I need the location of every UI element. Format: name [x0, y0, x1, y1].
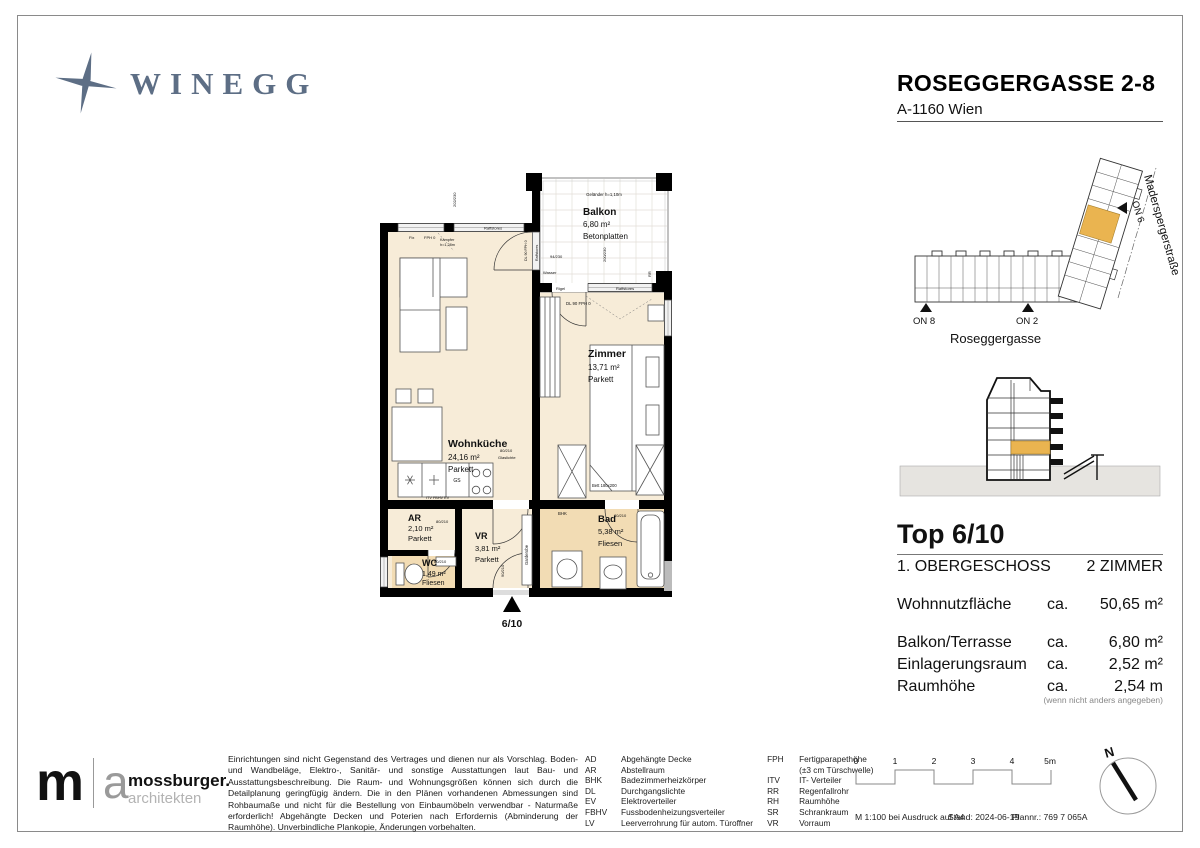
- north-label: N: [1103, 744, 1116, 761]
- svg-text:Fix: Fix: [409, 235, 414, 240]
- site-wing-mader: [1058, 158, 1147, 310]
- svg-text:Fliesen: Fliesen: [422, 580, 445, 587]
- plan-date: Stand: 2024-06-19: [948, 812, 1019, 822]
- svg-text:24,16 m²: 24,16 m²: [448, 453, 480, 462]
- svg-text:VR: VR: [475, 531, 488, 541]
- plan-number: Plannr.: 769 7 065A: [1012, 812, 1088, 822]
- svg-text:13,71 m²: 13,71 m²: [588, 363, 620, 372]
- svg-text:Glaslichte: Glaslichte: [498, 455, 516, 460]
- svg-text:DL 90 FPH 0: DL 90 FPH 0: [524, 240, 528, 261]
- svg-text:Bett 180x200: Bett 180x200: [592, 483, 617, 488]
- info-row-living: Wohnnutzfläche ca. 50,65 m²: [897, 596, 1163, 614]
- architect-logo-a: a: [103, 762, 129, 803]
- svg-text:Zimmer: Zimmer: [588, 348, 626, 360]
- disclaimer-text: Einrichtungen sind nicht Gegenstand des …: [228, 754, 578, 834]
- svg-text:Parkett: Parkett: [475, 555, 500, 564]
- scale-bar: 0 1 2 3 4 5m: [846, 752, 1061, 792]
- site-plan: ON 8 ON 2 ON 6 Maderspergerstraße Rosegg…: [880, 140, 1180, 355]
- svg-text:1: 1: [893, 756, 898, 766]
- header-rule: [897, 121, 1163, 122]
- info-row-height: Raumhöhe ca. 2,54 m: [897, 678, 1163, 696]
- entry-threshold: [493, 590, 529, 595]
- svg-text:200/230: 200/230: [602, 247, 607, 262]
- svg-text:6/10: 6/10: [502, 618, 523, 630]
- wc-tank: [396, 563, 404, 585]
- svg-text:4: 4: [1010, 756, 1015, 766]
- street-mader: Maderspergerstraße: [1141, 174, 1180, 277]
- svg-text:0: 0: [854, 756, 859, 766]
- svg-text:Kämpfer: Kämpfer: [440, 238, 455, 242]
- svg-text:2: 2: [932, 756, 937, 766]
- svg-text:90/210: 90/210: [500, 564, 505, 577]
- unit-title-rule: [897, 554, 1163, 555]
- svg-text:Raffstores: Raffstores: [535, 244, 539, 261]
- on2-marker: [1022, 303, 1034, 312]
- svg-text:ITV FBHV EV: ITV FBHV EV: [426, 496, 450, 500]
- on8-marker: [920, 303, 932, 312]
- info-row-storage: Einlagerungsraum ca. 2,52 m²: [897, 656, 1163, 674]
- chair: [396, 389, 411, 403]
- plan-document-page: WINEGG ROSEGGERGASSE 2-8 A-1160 Wien: [0, 0, 1200, 848]
- height-note: (wenn nicht anders angegeben): [897, 695, 1163, 705]
- floor-plan: Geländer h=1,10m Balkon 6,80 m² Betonpla…: [380, 165, 690, 635]
- svg-text:h=1,28m: h=1,28m: [440, 243, 455, 247]
- svg-text:Raffstores: Raffstores: [484, 226, 502, 231]
- info-row-balcony: Balkon/Terrasse ca. 6,80 m²: [897, 634, 1163, 652]
- architect-logo-m: m: [36, 760, 84, 806]
- gs-label: GS: [453, 478, 461, 484]
- svg-text:80/210: 80/210: [436, 519, 449, 524]
- winegg-logo-icon: [55, 52, 117, 114]
- building-section: [898, 358, 1163, 498]
- on2-label: ON 2: [1016, 316, 1038, 327]
- svg-text:AR: AR: [408, 513, 421, 523]
- svg-text:Parkett: Parkett: [408, 534, 433, 543]
- svg-text:Parkett: Parkett: [448, 465, 474, 474]
- architect-name-block: mossburger. architekten: [128, 772, 230, 807]
- street-rosegger: Roseggergasse: [950, 331, 1041, 346]
- unit-title: Top 6/10: [897, 519, 1005, 550]
- project-city: A-1160 Wien: [897, 101, 983, 118]
- closet: [648, 305, 664, 321]
- svg-text:2,10 m²: 2,10 m²: [408, 524, 434, 533]
- svg-text:5m: 5m: [1044, 756, 1056, 766]
- svg-text:Bad: Bad: [598, 514, 616, 525]
- svg-text:DL 90 FPH 0: DL 90 FPH 0: [566, 301, 591, 306]
- svg-text:RR: RR: [647, 271, 652, 277]
- project-title: ROSEGGERGASSE 2-8: [897, 70, 1167, 97]
- architect-sub: architekten: [128, 791, 230, 808]
- railing-label: Geländer h=1,10m: [586, 192, 622, 197]
- architect-logo: m a: [36, 758, 129, 808]
- wc-toilet: [405, 564, 423, 584]
- svg-text:202/230: 202/230: [452, 192, 457, 207]
- svg-text:5,38 m²: 5,38 m²: [598, 527, 624, 536]
- balkon-floor: Betonplatten: [583, 232, 628, 241]
- highlighted-floor: [1011, 441, 1050, 454]
- room-count-label: 2 ZIMMER: [1087, 558, 1163, 576]
- north-arrow: N: [1092, 744, 1164, 824]
- svg-text:BHK: BHK: [558, 511, 567, 516]
- on6-label: ON 6: [1129, 200, 1146, 224]
- svg-text:94/230: 94/230: [550, 254, 563, 259]
- balkon-name: Balkon: [583, 207, 616, 218]
- coffee-table: [446, 307, 467, 350]
- svg-text:Wohnküche: Wohnküche: [448, 438, 507, 450]
- svg-text:3: 3: [971, 756, 976, 766]
- svg-text:Rigel: Rigel: [556, 286, 565, 291]
- shaft: [664, 561, 672, 591]
- floor-label: 1. OBERGESCHOSS: [897, 558, 1087, 576]
- balkon-area: 6,80 m²: [583, 220, 610, 229]
- architect-logo-divider: [93, 758, 94, 808]
- on8-label: ON 8: [913, 316, 935, 327]
- svg-text:WC: WC: [422, 558, 437, 568]
- chair: [418, 389, 433, 403]
- legend-left-column: ADAbgehängte Decke ARAbstellraum BHKBade…: [585, 754, 753, 828]
- floor-room-row: 1. OBERGESCHOSS 2 ZIMMER: [897, 558, 1163, 576]
- entrance-marker: 6/10: [502, 596, 523, 630]
- svg-text:Raffstores: Raffstores: [616, 286, 634, 291]
- brand-wordmark: WINEGG: [130, 66, 318, 102]
- abbreviation-legend: ADAbgehängte Decke ARAbstellraum BHKBade…: [585, 754, 874, 828]
- section-balconies: [1050, 398, 1063, 465]
- svg-text:Garderobe: Garderobe: [524, 544, 529, 565]
- svg-text:Parkett: Parkett: [588, 375, 614, 384]
- architect-name: mossburger.: [128, 772, 230, 791]
- dining-table: [392, 407, 442, 461]
- svg-text:FPH 0: FPH 0: [424, 235, 436, 240]
- svg-text:1,49 m²: 1,49 m²: [422, 571, 446, 578]
- svg-text:3,81 m²: 3,81 m²: [475, 544, 501, 553]
- svg-text:Fliesen: Fliesen: [598, 539, 622, 548]
- svg-text:Wasser: Wasser: [543, 270, 557, 275]
